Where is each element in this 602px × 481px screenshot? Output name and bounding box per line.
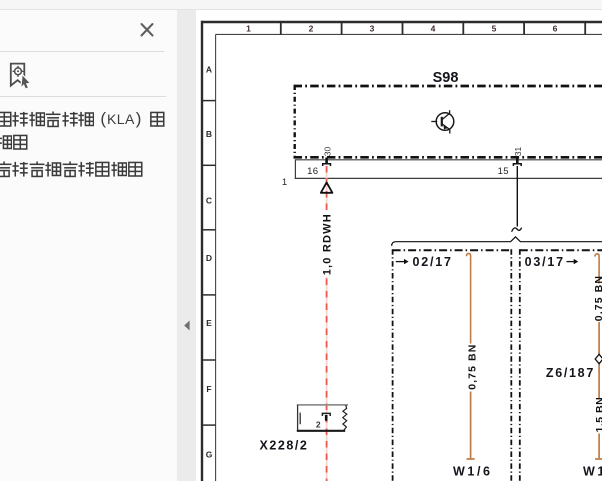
svg-text:F: F xyxy=(206,384,211,394)
svg-text:Z6/187: Z6/187 xyxy=(546,366,595,380)
svg-text:02/17: 02/17 xyxy=(413,255,453,269)
svg-text:1,5 BN: 1,5 BN xyxy=(594,397,602,433)
svg-text:2: 2 xyxy=(309,23,314,33)
svg-text:2: 2 xyxy=(316,419,321,429)
svg-text:X228/2: X228/2 xyxy=(260,438,309,452)
svg-text:A: A xyxy=(206,64,212,74)
svg-text:B: B xyxy=(206,129,212,139)
svg-text:4: 4 xyxy=(431,23,436,33)
svg-text:5: 5 xyxy=(492,23,497,33)
svg-text:W1/6: W1/6 xyxy=(583,465,602,479)
svg-text:16: 16 xyxy=(307,166,318,177)
svg-text:1: 1 xyxy=(246,23,251,33)
svg-text:S98: S98 xyxy=(433,70,459,86)
svg-text:0,75 BN: 0,75 BN xyxy=(593,275,602,321)
svg-text:15: 15 xyxy=(498,166,509,177)
svg-text:1,0 RDWH: 1,0 RDWH xyxy=(322,213,334,275)
svg-text:30: 30 xyxy=(322,146,332,156)
svg-text:D: D xyxy=(206,253,212,263)
svg-text:31: 31 xyxy=(513,146,523,156)
svg-text:6: 6 xyxy=(553,23,558,33)
svg-text:3: 3 xyxy=(370,23,375,33)
svg-text:03/17: 03/17 xyxy=(525,255,565,269)
svg-text:0,75 BN: 0,75 BN xyxy=(466,344,478,390)
svg-text:W1/6: W1/6 xyxy=(453,465,493,479)
svg-text:G: G xyxy=(206,449,213,459)
svg-text:C: C xyxy=(206,196,212,206)
svg-text:1: 1 xyxy=(282,177,287,188)
svg-text:E: E xyxy=(206,318,212,328)
